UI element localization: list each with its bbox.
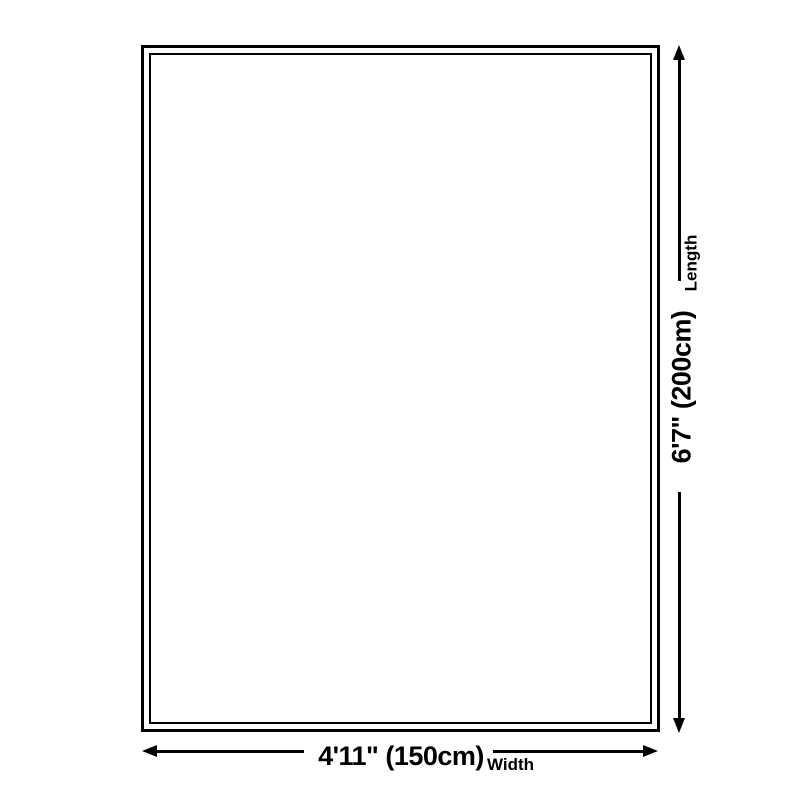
product-outline-outer — [141, 45, 660, 732]
product-outline-inner — [149, 53, 652, 724]
width-label: Width — [487, 756, 534, 773]
length-dimension-line-bottom — [678, 492, 681, 721]
width-dimension-line-left — [154, 750, 304, 753]
width-value: 4'11" (150cm) — [318, 743, 484, 770]
arrow-right-icon — [643, 745, 658, 757]
length-value: 6'7" (200cm) — [669, 311, 696, 464]
arrow-down-icon — [673, 718, 685, 733]
width-dimension-line-right — [493, 750, 645, 753]
length-label: Length — [683, 235, 700, 292]
size-diagram: 6'7" (200cm) Length 4'11" (150cm) Width — [0, 0, 800, 800]
